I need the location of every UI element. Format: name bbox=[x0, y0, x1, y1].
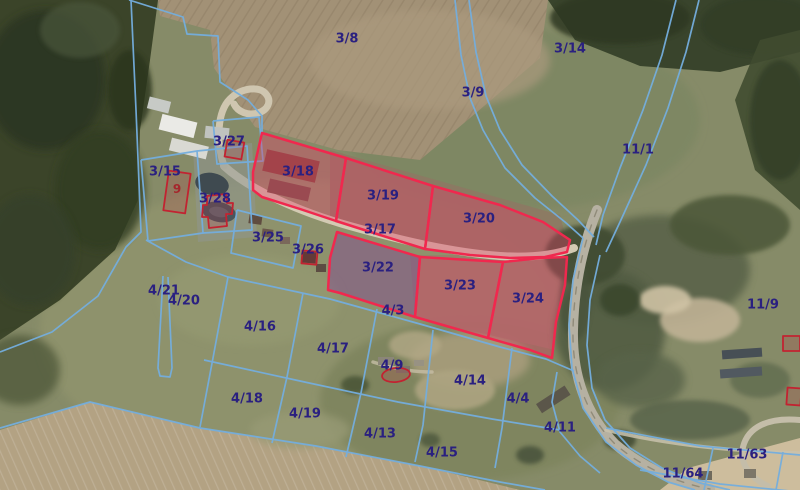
map-viewport[interactable]: 3/83/143/911/13/273/1593/283/183/193/203… bbox=[0, 0, 800, 490]
orthophoto-map bbox=[0, 0, 800, 490]
